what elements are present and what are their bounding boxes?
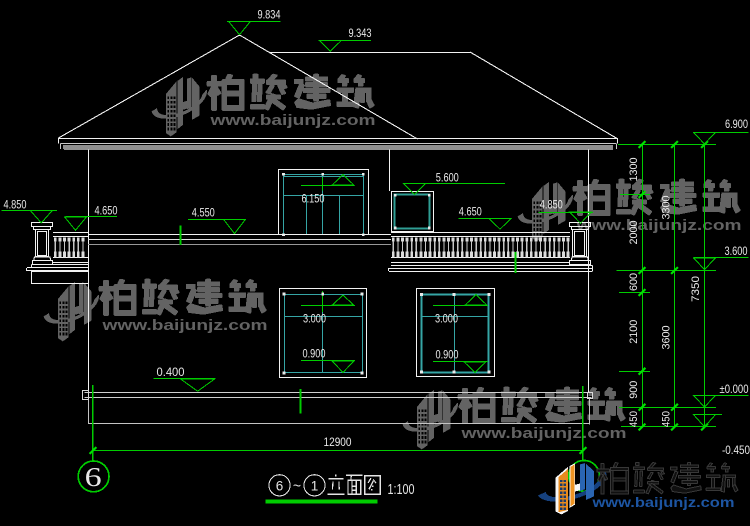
svg-text:7350: 7350 — [690, 276, 702, 302]
svg-text:3.000: 3.000 — [435, 314, 458, 326]
svg-text:4.650: 4.650 — [95, 205, 118, 217]
svg-text:www.baijunjz.com: www.baijunjz.com — [575, 218, 741, 234]
svg-text:9.343: 9.343 — [349, 28, 372, 40]
svg-text:6: 6 — [276, 478, 284, 493]
svg-text:1300: 1300 — [628, 158, 640, 182]
svg-text:www.baijunjz.com: www.baijunjz.com — [209, 113, 375, 129]
svg-text:6.900: 6.900 — [725, 119, 748, 131]
svg-text:6: 6 — [85, 462, 102, 492]
svg-text:4.850: 4.850 — [4, 199, 27, 211]
svg-text:450: 450 — [660, 411, 672, 427]
svg-text:900: 900 — [628, 381, 640, 399]
svg-text:±0.000: ±0.000 — [720, 384, 749, 396]
svg-text:1:100: 1:100 — [388, 482, 415, 498]
svg-text:3300: 3300 — [660, 196, 672, 220]
svg-text:4.850: 4.850 — [540, 200, 563, 212]
svg-text:www.baijunjz.com: www.baijunjz.com — [101, 318, 267, 334]
svg-text:-0.450: -0.450 — [722, 445, 750, 457]
svg-text:3.000: 3.000 — [303, 314, 326, 326]
svg-text:4.650: 4.650 — [459, 207, 482, 219]
svg-text:~: ~ — [293, 477, 301, 493]
svg-text:3.600: 3.600 — [725, 246, 748, 258]
svg-text:0.900: 0.900 — [436, 350, 459, 362]
svg-text:1: 1 — [311, 478, 319, 493]
svg-text:0.400: 0.400 — [157, 367, 185, 379]
svg-text:2100: 2100 — [628, 320, 640, 344]
svg-text:12900: 12900 — [324, 435, 352, 449]
svg-text:3600: 3600 — [660, 326, 672, 350]
svg-text:www.baijunjz.com: www.baijunjz.com — [591, 495, 734, 510]
svg-text:4.550: 4.550 — [192, 208, 215, 220]
svg-text:9.834: 9.834 — [258, 9, 281, 21]
svg-text:6.150: 6.150 — [302, 193, 325, 205]
svg-text:450: 450 — [628, 411, 640, 427]
svg-text:5.600: 5.600 — [436, 172, 459, 184]
svg-text:0.900: 0.900 — [303, 349, 326, 361]
svg-text:600: 600 — [628, 273, 640, 291]
svg-text:2000: 2000 — [628, 221, 640, 245]
svg-text:www.baijunjz.com: www.baijunjz.com — [460, 426, 626, 442]
